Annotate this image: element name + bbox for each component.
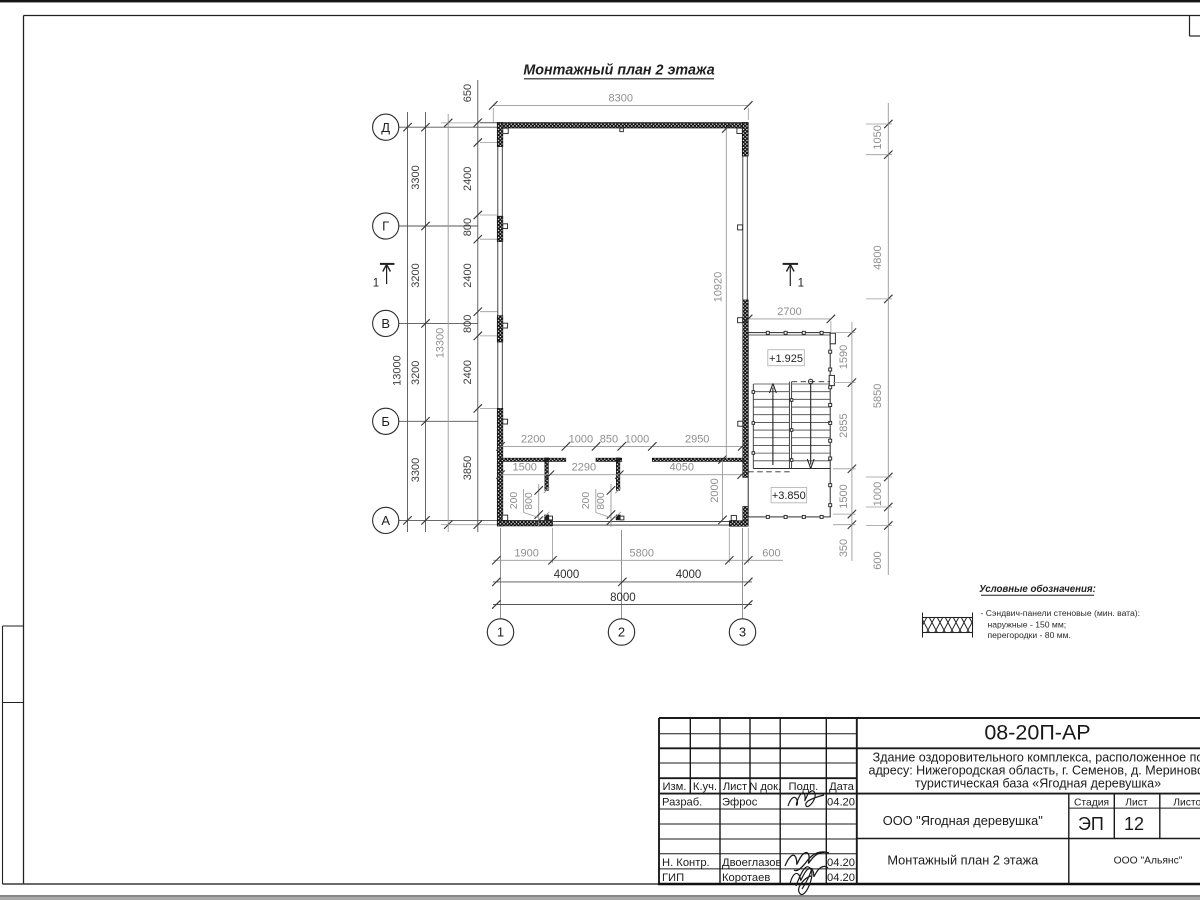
svg-text:+1.925: +1.925	[769, 353, 803, 365]
svg-text:8000: 8000	[610, 592, 636, 604]
svg-text:Листов: Листов	[1173, 797, 1200, 808]
svg-text:600: 600	[762, 547, 780, 559]
svg-text:4800: 4800	[872, 245, 884, 269]
svg-text:3200: 3200	[410, 361, 422, 385]
svg-text:наружные - 150 мм;: наружные - 150 мм;	[988, 620, 1067, 630]
svg-text:ООО "Альянс": ООО "Альянс"	[1114, 856, 1183, 867]
svg-text:1: 1	[497, 625, 504, 640]
svg-text:1: 1	[373, 278, 379, 290]
svg-text:Условные обозначения:: Условные обозначения:	[979, 584, 1096, 595]
svg-text:1000: 1000	[625, 433, 649, 445]
svg-text:08-20П-АР: 08-20П-АР	[984, 721, 1090, 745]
svg-text:Монтажный план 2 этажа: Монтажный план 2 этажа	[887, 853, 1039, 868]
svg-text:ООО "Ягодная деревушка": ООО "Ягодная деревушка"	[883, 813, 1043, 828]
svg-text:Стадия: Стадия	[1074, 797, 1109, 808]
svg-text:4050: 4050	[670, 462, 694, 474]
svg-text:5850: 5850	[872, 384, 884, 408]
svg-text:12: 12	[1124, 814, 1144, 834]
svg-text:1500: 1500	[512, 462, 536, 474]
svg-text:8300: 8300	[609, 93, 633, 105]
svg-text:13000: 13000	[392, 355, 404, 386]
svg-text:1500: 1500	[838, 484, 850, 508]
svg-text:04.20: 04.20	[827, 872, 855, 884]
svg-text:1900: 1900	[514, 547, 538, 559]
svg-text:Б: Б	[381, 414, 390, 429]
svg-text:перегородки - 80 мм.: перегородки - 80 мм.	[988, 630, 1071, 640]
svg-text:2290: 2290	[572, 462, 596, 474]
svg-text:Монтажный план 2 этажа: Монтажный план 2 этажа	[523, 63, 714, 79]
svg-text:ГИП: ГИП	[662, 872, 684, 884]
svg-text:2200: 2200	[521, 433, 545, 445]
svg-text:2: 2	[618, 625, 625, 640]
svg-text:Лист: Лист	[1125, 797, 1148, 808]
svg-text:4000: 4000	[676, 569, 702, 581]
svg-text:800: 800	[523, 492, 535, 510]
svg-text:2700: 2700	[777, 306, 801, 318]
svg-text:А: А	[381, 513, 390, 528]
svg-text:Двоеглазов: Двоеглазов	[722, 857, 782, 869]
svg-text:1000: 1000	[569, 433, 593, 445]
svg-text:3: 3	[739, 625, 746, 640]
svg-text:1590: 1590	[838, 345, 850, 369]
svg-text:600: 600	[872, 551, 884, 569]
svg-text:Здание оздоровительного компле: Здание оздоровительного комплекса, распо…	[873, 751, 1200, 765]
svg-text:Лист: Лист	[723, 781, 747, 793]
svg-text:Эфрос: Эфрос	[722, 797, 758, 809]
svg-text:2400: 2400	[462, 263, 474, 287]
svg-text:Д: Д	[381, 120, 390, 135]
svg-text:Г: Г	[382, 219, 389, 234]
svg-text:- Сэндвич-панели стеновые (мин: - Сэндвич-панели стеновые (мин. вата):	[981, 608, 1141, 618]
svg-text:10920: 10920	[713, 272, 725, 303]
svg-text:3300: 3300	[410, 165, 422, 189]
svg-text:650: 650	[462, 84, 474, 102]
svg-text:2000: 2000	[709, 478, 721, 502]
svg-text:+3.850: +3.850	[772, 490, 806, 502]
svg-text:04.20: 04.20	[827, 857, 855, 869]
svg-text:200: 200	[580, 492, 592, 510]
svg-text:Н. Контр.: Н. Контр.	[662, 857, 710, 869]
svg-text:800: 800	[462, 315, 474, 333]
svg-text:Изм.: Изм.	[663, 781, 687, 793]
svg-text:Коротаев: Коротаев	[722, 872, 770, 884]
svg-text:13300: 13300	[435, 328, 447, 359]
svg-text:3300: 3300	[410, 458, 422, 482]
svg-text:800: 800	[462, 218, 474, 236]
svg-text:200: 200	[508, 492, 520, 510]
svg-text:К.уч.: К.уч.	[693, 781, 717, 793]
svg-text:2855: 2855	[838, 413, 850, 437]
svg-text:1050: 1050	[872, 125, 884, 149]
svg-text:800: 800	[595, 492, 607, 510]
svg-text:Разраб.: Разраб.	[662, 797, 702, 809]
svg-text:1000: 1000	[872, 482, 884, 506]
svg-text:3850: 3850	[462, 456, 474, 480]
svg-text:ЭП: ЭП	[1078, 814, 1104, 834]
svg-text:Дата: Дата	[829, 781, 855, 793]
svg-text:В: В	[381, 316, 390, 331]
svg-text:туристическая база «Ягодная де: туристическая база «Ягодная деревушка»	[915, 777, 1161, 791]
svg-text:N док.: N док.	[749, 781, 781, 793]
svg-text:2400: 2400	[462, 167, 474, 191]
svg-text:адресу: Нижегородская область,: адресу: Нижегородская область, г. Семено…	[869, 764, 1200, 778]
svg-text:3200: 3200	[410, 263, 422, 287]
svg-text:350: 350	[838, 539, 850, 557]
svg-text:4000: 4000	[554, 569, 580, 581]
svg-text:2400: 2400	[462, 360, 474, 384]
svg-text:2950: 2950	[685, 433, 709, 445]
svg-text:5800: 5800	[630, 547, 654, 559]
svg-text:04.20: 04.20	[827, 797, 855, 809]
svg-text:850: 850	[600, 433, 618, 445]
svg-text:1: 1	[798, 278, 804, 290]
